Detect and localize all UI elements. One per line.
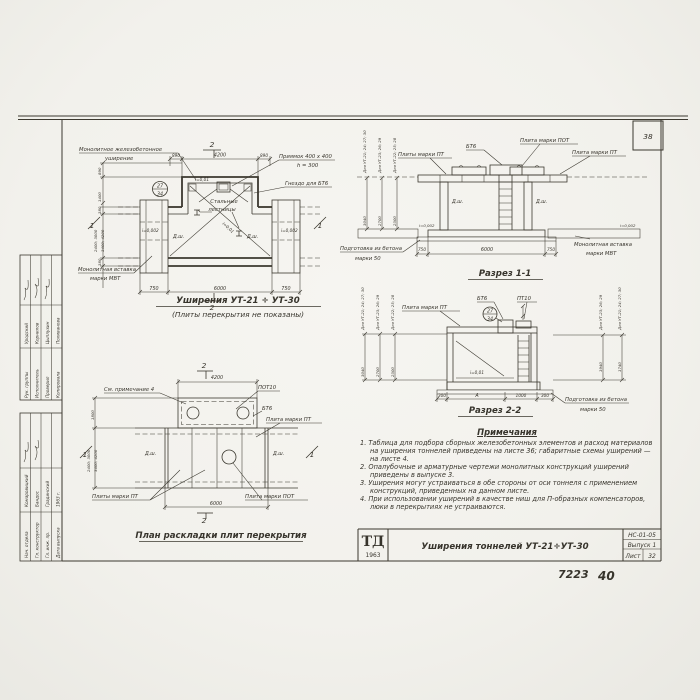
notes-title: Примечания xyxy=(360,427,654,437)
label-prep: марки 50 xyxy=(580,407,606,413)
ladder xyxy=(518,335,529,382)
dim-text: 300 xyxy=(541,393,549,398)
dim-text: 6000 xyxy=(481,247,493,253)
label-bt6: БТ6 xyxy=(477,296,488,302)
tunnel-list: Для УТ-21; 24; 27; 30 xyxy=(362,130,367,174)
insert-right xyxy=(272,200,300,273)
detail-callout: 27 34 xyxy=(483,307,502,323)
dim-text: 2300 xyxy=(390,367,395,377)
bedding-right xyxy=(548,229,640,238)
tunnel-list: Для УТ-23; 26; 29 xyxy=(377,137,382,174)
titleblock-sheet-number: 32 xyxy=(648,554,656,560)
stamp-name: Градинский xyxy=(45,481,50,507)
callout-note-ref: См. примечание 4 xyxy=(104,387,154,393)
section-mark-text: 1 xyxy=(318,221,323,230)
slope-label: i=0,01 xyxy=(221,221,235,234)
plan-bottom-drawing: 2 4200 См. примечание 4 ПОТ10 БТ6 Плита … xyxy=(80,361,322,542)
label-pot: Плита марки ПОТ xyxy=(520,138,570,144)
section-mark-text: 1 xyxy=(90,221,95,230)
stamp-role: Гл. конструктор xyxy=(35,522,40,558)
hatch-opening xyxy=(187,407,199,419)
section-mark-1-right: 1 xyxy=(306,446,318,459)
label-prep: Подготовка из бетона xyxy=(340,246,402,252)
tunnel-list: Для УТ-23; 26; 29 xyxy=(598,294,603,331)
stamp-lower-text: Нач. отдела Комаровицкий Гл. конструктор… xyxy=(24,440,61,559)
dim-text: 1800 xyxy=(90,410,95,420)
tunnel-list: Для УТ-21; 24; 27; 30 xyxy=(360,287,365,331)
logo-year: 1963 xyxy=(366,553,381,559)
slope-label: i=0,002 xyxy=(281,228,298,233)
section-mark-text: 2 xyxy=(202,516,207,525)
dim-text: 1940 xyxy=(598,362,603,372)
pit-inner xyxy=(219,184,228,190)
dim-text: 6000 xyxy=(210,501,222,507)
section1-title: Разрез 1-1 xyxy=(479,269,532,279)
callout-pit: Приямок 400 х 400 xyxy=(279,154,332,160)
note-item: 4. При использовании уширений в качестве… xyxy=(360,495,654,511)
dim-text: 380 xyxy=(97,258,102,266)
ladder xyxy=(499,175,512,230)
roof-upper-plate-left xyxy=(452,167,486,175)
stamp-role: Дата выпуска xyxy=(56,527,61,559)
drawing-canvas: 38 Рук. группы Уродский Исполнитель Корн… xyxy=(0,0,700,700)
joint-label: Д.ш. xyxy=(272,451,284,457)
stamp-role: Нач. отдела xyxy=(24,531,29,558)
label-pt: Плита марки ПТ xyxy=(402,305,448,311)
stamp-role: Исполнитель xyxy=(35,368,40,398)
section2-title: Разрез 2-2 xyxy=(469,406,522,416)
section-mark-1-right: 1 xyxy=(314,217,326,230)
bedding xyxy=(417,237,556,241)
note-item: 3. Уширения могут устраиваться в обе сто… xyxy=(360,479,654,495)
section-mark-text: 2 xyxy=(210,140,215,149)
label-pt-right: Плита марки ПТ xyxy=(572,150,618,156)
dim-text: 1000 xyxy=(516,393,527,398)
signature-squiggle xyxy=(24,440,39,462)
title-block: ТД 1963 Уширения тоннелей УТ-21÷УТ-30 НС… xyxy=(358,529,661,561)
tunnel-list: Для УТ-23; 26; 29 xyxy=(375,294,380,331)
label-pt-left: Плиты марки ПТ xyxy=(398,152,445,158)
tunnel-list: Для УТ-22; 25; 28 xyxy=(392,137,397,174)
dim-text: 890 xyxy=(97,167,102,175)
plan-top-subtitle: (Плиты перекрытия не показаны) xyxy=(172,310,304,319)
label-pt10: ПТ10 xyxy=(517,296,532,302)
dim-text: 2400; 3000 xyxy=(93,229,98,252)
tunnel-list: Для УТ-21; 24; 27; 30 xyxy=(617,287,622,331)
roof-plan-band: Д.ш. Д.ш. xyxy=(135,428,298,488)
label-insert: Монолитная вставка xyxy=(574,242,632,248)
detail-number: 27 xyxy=(487,309,493,315)
detail-callout: 27 34 xyxy=(153,182,168,198)
floor-slab xyxy=(428,230,545,237)
slope-label: i=0,002 xyxy=(419,223,435,228)
callout-widening: Монолитное железобетонное xyxy=(79,147,163,153)
dim-text: 2300 xyxy=(392,216,397,226)
callout-pit: h = 300 xyxy=(297,163,319,169)
dim-text: 2400; 3000 xyxy=(86,449,91,472)
label-prep: марки 50 xyxy=(355,256,381,262)
pot-plate-hidden xyxy=(182,402,254,425)
label-prep: Подготовка из бетона xyxy=(565,397,627,403)
note-item: 2. Опалубочные и арматурные чертежи моно… xyxy=(360,463,654,479)
callout-insert: марки МВТ xyxy=(90,276,121,282)
dim-text: 3400; 4200 xyxy=(100,229,105,252)
dim-text: 890 xyxy=(172,153,180,158)
stamp-role: Проверил xyxy=(45,376,50,398)
joint-label: Д.ш. xyxy=(172,234,184,240)
section-mark-1-left: 1 xyxy=(88,217,100,230)
label-pot-bottom: Плита марки ПОТ xyxy=(245,494,295,500)
detail-number: 34 xyxy=(487,317,493,323)
titleblock-code: НС-01-05 xyxy=(628,533,656,539)
section2-dim-left: 3040 2700 2300 Для УТ-21; 24; 27; 30 Для… xyxy=(360,287,447,382)
joint-label: Д.ш. xyxy=(144,451,156,457)
bedding xyxy=(437,390,553,394)
plan-top-callouts: Монолитное железобетонное уширение Приям… xyxy=(78,147,335,282)
ladder-symbol xyxy=(236,231,242,236)
stamp-name: 1963 г. xyxy=(56,491,61,507)
plan-top-dim-bottom: 750 6000 750 xyxy=(138,273,302,295)
socket-right xyxy=(244,184,251,191)
logo-td: ТД xyxy=(362,534,385,550)
plan-top-drawing: 27 34 i=0,01 i=0,01 i=0,002 i=0,002 Д.ш.… xyxy=(78,140,335,319)
stamp-name: Комаровицкий xyxy=(24,474,29,507)
dim-text: А xyxy=(474,393,478,399)
section2-dim-right: 1940 1740 Для УТ-23; 26; 29 Для УТ-21; 2… xyxy=(553,287,626,382)
section-mark-text: 2 xyxy=(202,361,207,370)
tunnel-list: Для УТ-22; 25; 28 xyxy=(390,294,395,331)
plan-bottom-dim-left: 1800 2400; 3000 3400; 4200 xyxy=(86,396,178,490)
callout-ladders: Стальные xyxy=(210,199,238,205)
wall-left xyxy=(440,182,448,230)
slope-label: i=0,01 xyxy=(195,177,209,182)
section-2-2-drawing: i=0,01 27 34 Плита марки ПТ БТ6 ПТ10 Под… xyxy=(360,287,629,417)
floor-slab xyxy=(447,382,540,390)
hatch-opening xyxy=(222,450,236,464)
titleblock-sheet-label: Лист xyxy=(625,554,641,560)
dim-text: 380 xyxy=(97,206,102,214)
sheet-corner-number: 38 xyxy=(643,132,653,141)
stamp-upper-text: Рук. группы Уродский Исполнитель Корнило… xyxy=(24,278,61,398)
section-mark-2-bottom: 2 xyxy=(197,513,213,525)
label-insert: марки МВТ xyxy=(586,251,617,257)
drawing-sheet: 38 Рук. группы Уродский Исполнитель Корн… xyxy=(0,0,700,700)
dim-text: 6000 xyxy=(214,286,226,292)
plan-bottom-title: План раскладки плит перекрытия xyxy=(135,531,307,541)
bedding-left xyxy=(358,229,418,238)
stamp-role: Копировала xyxy=(56,371,61,398)
stamp-name: Уродский xyxy=(24,323,29,344)
dim-text: 3400; 4200 xyxy=(93,449,98,472)
label-pt-right: Плита марки ПТ xyxy=(266,417,312,423)
roof-slabs xyxy=(418,175,567,182)
stamp-name: Бандос xyxy=(35,490,40,507)
callout-widening: уширение xyxy=(104,156,134,162)
joint-label: Д.ш. xyxy=(451,199,463,205)
plan-top-dim-top: 890 4200 890 xyxy=(168,153,272,178)
dim-text: 750 xyxy=(418,247,426,252)
titleblock-issue: Выпуск 1 xyxy=(628,543,656,549)
left-stamp: Рук. группы Уродский Исполнитель Корнило… xyxy=(20,255,62,561)
label-bt6: БТ6 xyxy=(466,144,477,150)
insert-left xyxy=(140,200,168,273)
note-item: 1. Таблица для подбора сборных железобет… xyxy=(360,439,654,463)
doc-number: 7223 xyxy=(558,568,589,581)
dim-text: 890 xyxy=(260,153,268,158)
dim-text: 300 xyxy=(438,393,446,398)
page-number: 40 xyxy=(597,569,615,583)
joint-label: Д.ш. xyxy=(246,234,258,240)
stamp-role: Рук. группы xyxy=(24,371,29,398)
dim-text: 2700 xyxy=(375,367,380,377)
roof-upper-plate-right xyxy=(510,167,544,175)
dim-text: 750 xyxy=(149,286,158,292)
callout-socket: Гнездо для БТ6 xyxy=(285,181,329,187)
slope-label: i=0,002 xyxy=(142,228,159,233)
notes-block: Примечания 1. Таблица для подбора сборны… xyxy=(360,427,654,511)
label-bt6: БТ6 xyxy=(262,406,273,412)
slope-label: i=0,01 xyxy=(470,370,484,375)
wall-right xyxy=(524,182,532,230)
dim-text: 3040 xyxy=(360,367,365,377)
pot-plate-outline xyxy=(178,398,257,428)
slope-label: i=0,002 xyxy=(620,223,636,228)
detail-number: 34 xyxy=(157,192,163,198)
dim-text: 4200 xyxy=(214,153,226,159)
joint-label: Д.ш. xyxy=(535,199,547,205)
section1-dim-left: 3040 2700 2300 Для УТ-21; 24; 27; 30 Для… xyxy=(362,130,399,231)
dim-text: 2700 xyxy=(377,216,382,226)
stamp-name: Поливанова xyxy=(56,317,61,344)
stamp-name: Цыплухин xyxy=(45,321,50,344)
dim-text: 4200 xyxy=(211,375,223,381)
hatch-opening xyxy=(237,407,249,419)
dim-text: 750 xyxy=(547,247,555,252)
titleblock-title: Уширения тоннелей УТ-21÷УТ-30 xyxy=(421,542,588,552)
plan-bottom-dim-top: 4200 xyxy=(176,375,259,398)
detail-number: 27 xyxy=(157,184,163,190)
label-pt-bottom: Плиты марки ПТ xyxy=(92,494,139,500)
callout-insert: Монолитная вставка xyxy=(78,267,136,273)
plan-top-title: Уширения УТ-21 ÷ УТ-30 xyxy=(176,296,299,306)
dim-text: 1740 xyxy=(617,362,622,372)
section-mark-text: 1 xyxy=(310,450,315,459)
stamp-name: Корнилов xyxy=(35,322,40,344)
label-pot10: ПОТ10 xyxy=(258,385,277,391)
section-1-1-drawing: Д.ш. Д.ш. i=0,002 i=0,002 БТ6 Плита марк… xyxy=(340,130,648,280)
dim-text: 750 xyxy=(281,286,290,292)
bt6-block xyxy=(498,320,513,333)
dim-text: 1400 xyxy=(97,192,102,202)
dim-text: 3040 xyxy=(362,216,367,226)
stamp-role: Гл. инж. пр. xyxy=(45,532,50,558)
signature-squiggle xyxy=(24,278,49,300)
socket-left xyxy=(189,184,196,191)
